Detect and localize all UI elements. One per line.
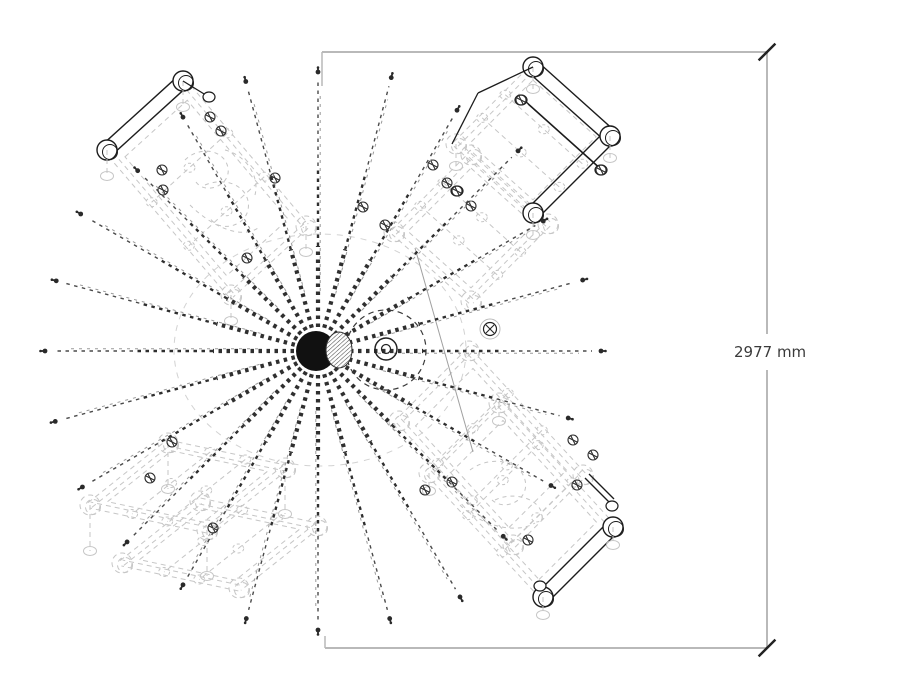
ray-tip (316, 66, 321, 74)
tube-joint (145, 473, 155, 483)
tube-joint (205, 112, 215, 122)
light-ray (330, 105, 461, 330)
light-ray (339, 363, 556, 489)
furniture-frame-bottom-right[interactable] (419, 393, 624, 620)
ray-tip (455, 105, 461, 113)
ray-tip (39, 349, 47, 354)
light-ray (316, 66, 321, 327)
furniture-frame-top-right-hidden-copy (384, 145, 559, 311)
ray-tip (387, 616, 392, 624)
tube-joint (242, 253, 252, 263)
light-ray (339, 217, 549, 339)
light-ray (330, 372, 464, 602)
ray-tip (50, 419, 58, 424)
furniture-frame-top-right[interactable] (358, 57, 621, 240)
cad-viewport[interactable]: 2977 mm (0, 0, 905, 699)
tube-joint (216, 126, 226, 136)
light-ray (77, 363, 297, 491)
light-ray (243, 76, 311, 328)
furniture-frame-bottom-left-hidden-copy (112, 491, 328, 598)
light-ray (324, 72, 393, 328)
ray-tip (389, 72, 394, 80)
ray-tip (179, 582, 185, 590)
light-ray (179, 112, 306, 330)
light-ray (179, 372, 306, 590)
tube-joint (157, 165, 167, 175)
light-ray (244, 374, 312, 624)
tube-joint (588, 450, 598, 460)
tube-joint (466, 201, 476, 211)
ray-tip (316, 628, 321, 636)
light-ray (76, 210, 298, 339)
tube-joint (358, 202, 368, 212)
ray-tip (179, 112, 185, 120)
light-ray (324, 374, 392, 624)
tube-joint (420, 485, 430, 495)
tube-joint (428, 160, 438, 170)
furniture-frame-bottom-right-hidden-copy (389, 341, 594, 555)
tube-joint (568, 435, 578, 445)
ray-tip (244, 616, 249, 624)
ray-tip (123, 540, 130, 547)
ray-tip (243, 76, 248, 84)
tube-joint (380, 220, 390, 230)
ray-tip (516, 146, 523, 153)
light-socket (326, 332, 352, 368)
ray-tip (599, 349, 607, 354)
ray-tip (549, 483, 557, 489)
light-ray (316, 375, 321, 636)
dimension-label: 2977 mm (731, 343, 809, 361)
tube-joint (523, 535, 533, 545)
tube-joint (167, 437, 177, 447)
ray-tip (76, 210, 84, 216)
light-ray (50, 357, 295, 424)
light-ray (39, 349, 294, 354)
ray-tip (133, 166, 140, 173)
ray-tip (580, 278, 588, 283)
connector-ball (480, 319, 500, 339)
bulb-ring-outer (375, 338, 397, 360)
ray-tip (566, 416, 574, 421)
ray-tip (77, 485, 85, 491)
ray-tip (458, 595, 464, 603)
ray-tip (51, 278, 59, 283)
